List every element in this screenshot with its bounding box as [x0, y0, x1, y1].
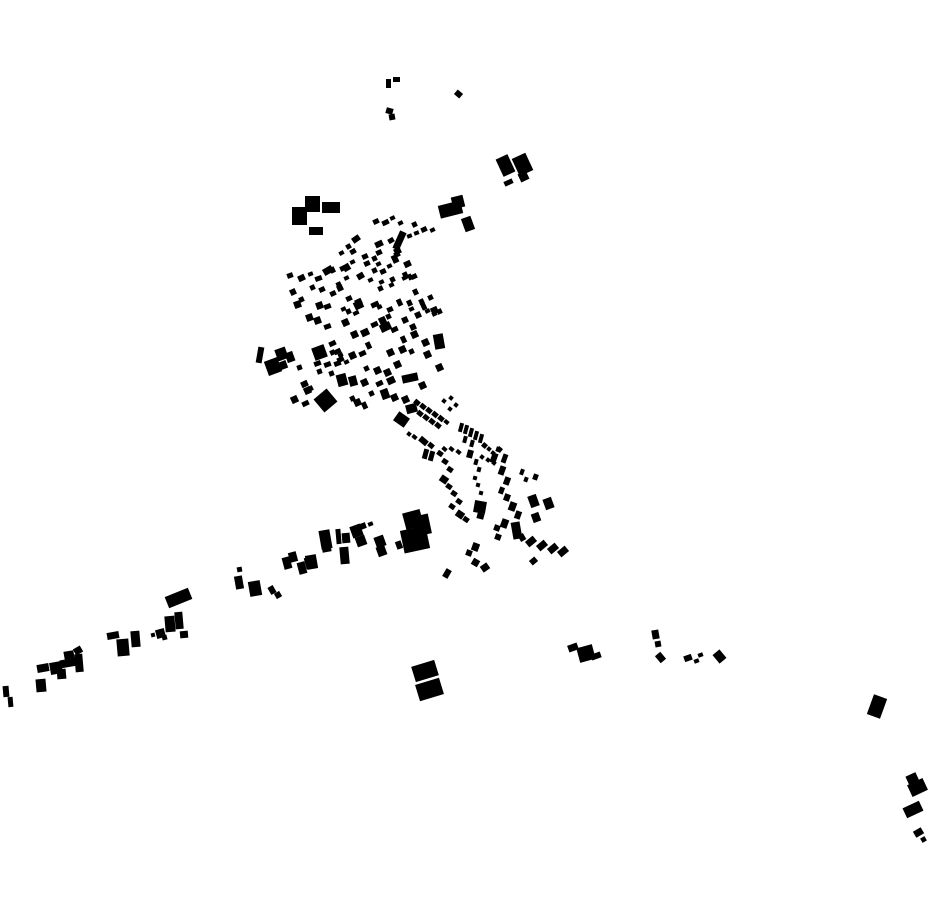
building-footprint [372, 218, 380, 225]
building-footprint [434, 422, 442, 430]
building-footprint [435, 363, 444, 372]
building-footprint [351, 234, 361, 244]
building-footprint [180, 631, 189, 639]
building-footprint [345, 295, 353, 302]
building-footprint [401, 395, 410, 404]
building-footprint [503, 476, 511, 486]
building-footprint [408, 348, 415, 355]
building-footprint [63, 650, 74, 660]
building-footprint [311, 344, 328, 361]
building-footprint [367, 521, 373, 526]
building-footprint [389, 215, 395, 221]
building-footprint [446, 466, 454, 474]
building-footprint [412, 288, 419, 296]
building-footprint [418, 381, 427, 390]
building-footprint [35, 679, 46, 693]
building-footprint [920, 836, 927, 843]
building-footprint [388, 282, 394, 288]
building-footprint [301, 400, 309, 407]
building-footprint [289, 288, 297, 296]
building-footprint [367, 277, 373, 283]
building-footprint [286, 272, 293, 279]
building-footprint [401, 372, 418, 383]
building-footprint [421, 338, 430, 347]
building-footprint [328, 370, 334, 376]
building-footprint [274, 591, 282, 599]
building-footprint [329, 290, 337, 297]
building-footprint [494, 533, 502, 541]
building-footprint [323, 323, 331, 330]
building-footprint [393, 77, 400, 82]
building-footprint [500, 518, 510, 529]
building-footprint [393, 360, 402, 369]
building-footprint [527, 494, 540, 508]
building-footprint [454, 89, 463, 98]
building-footprint [461, 216, 475, 233]
building-footprint [408, 306, 414, 312]
building-footprint [321, 543, 331, 552]
building-footprint [363, 260, 371, 267]
building-footprint [476, 483, 481, 488]
building-footprint [307, 385, 314, 392]
building-footprint [316, 368, 322, 374]
building-footprint [377, 285, 384, 292]
building-footprint [336, 284, 344, 292]
building-footprint [359, 522, 367, 530]
building-footprint [370, 321, 378, 328]
building-footprint [428, 451, 435, 462]
building-footprint [523, 476, 528, 482]
building-footprint [441, 398, 447, 404]
building-footprint [381, 219, 389, 226]
building-footprint [161, 634, 167, 640]
building-footprint [151, 633, 156, 638]
building-footprint [386, 79, 391, 88]
building-footprint [390, 326, 398, 333]
building-footprint [296, 364, 302, 370]
building-footprint [314, 389, 338, 413]
building-footprint [386, 376, 396, 386]
building-footprint [350, 330, 359, 339]
building-footprint [322, 202, 340, 213]
building-footprint [473, 476, 478, 481]
building-footprint [348, 351, 357, 360]
building-footprint [292, 207, 307, 225]
building-footprint [360, 378, 369, 387]
building-footprint [174, 612, 183, 630]
building-footprint [390, 393, 399, 402]
building-footprint [336, 373, 349, 387]
building-footprint [248, 580, 262, 597]
building-footprint [498, 465, 507, 476]
building-footprint [697, 652, 703, 657]
building-footprint [389, 276, 396, 283]
building-footprint [348, 375, 358, 387]
building-footprint [514, 510, 522, 520]
building-footprint [358, 350, 366, 357]
building-footprint [355, 535, 368, 548]
building-footprint [36, 663, 49, 673]
building-footprint [297, 274, 306, 282]
building-footprint [476, 512, 484, 520]
building-footprint [380, 388, 391, 400]
building-footprint [389, 114, 396, 121]
building-footprint [406, 233, 412, 238]
building-footprint [309, 284, 316, 291]
building-footprint [74, 654, 84, 673]
building-footprint [323, 361, 331, 368]
building-footprint [542, 497, 554, 510]
building-footprint [441, 458, 449, 466]
building-footprint [338, 250, 344, 256]
building-footprint [361, 401, 368, 409]
building-footprint [448, 395, 454, 401]
building-footprint [318, 286, 326, 293]
building-footprint [420, 226, 428, 233]
building-footprint [363, 365, 370, 372]
building-footprint [410, 330, 419, 339]
building-footprint [386, 263, 392, 269]
building-footprint [427, 442, 435, 450]
building-footprint [479, 491, 484, 496]
building-footprint [469, 440, 475, 448]
building-footprint [411, 221, 418, 228]
building-footprint [349, 259, 355, 265]
building-footprint [313, 316, 322, 325]
building-footprint [427, 294, 434, 301]
building-footprint [693, 658, 699, 663]
building-footprint [288, 551, 298, 563]
building-footprint [345, 308, 352, 315]
building-footprint [473, 459, 478, 466]
building-footprint [374, 240, 384, 249]
building-footprint [476, 467, 481, 473]
building-footprint [333, 360, 341, 367]
building-footprint [57, 669, 67, 680]
building-footprint [465, 549, 473, 557]
building-footprint [398, 345, 407, 354]
building-footprint [396, 298, 403, 306]
building-footprint [343, 359, 349, 365]
building-footprint [493, 524, 501, 532]
building-footprint [335, 529, 341, 544]
building-footprint [415, 678, 444, 702]
building-footprint [867, 694, 887, 719]
map-canvas [0, 0, 930, 924]
building-footprint [375, 261, 381, 267]
building-footprint [365, 341, 372, 349]
building-footprint [501, 453, 509, 463]
building-footprint [8, 697, 14, 707]
building-footprint [305, 196, 320, 212]
building-footprint [371, 267, 378, 274]
building-footprint [450, 490, 458, 498]
building-footprint [343, 275, 349, 281]
building-footprint [462, 436, 468, 444]
building-footprint [385, 313, 392, 320]
building-footprint [3, 686, 10, 697]
building-footprint [313, 360, 321, 367]
building-footprint [414, 311, 422, 319]
building-footprint [655, 641, 662, 648]
building-footprint [451, 195, 466, 210]
building-footprint [309, 227, 323, 235]
building-footprint [423, 350, 432, 359]
building-footprint [433, 333, 445, 350]
building-footprint [429, 227, 435, 233]
building-footprint [448, 503, 456, 511]
building-footprint [448, 446, 454, 452]
building-footprint [290, 395, 299, 404]
building-footprint [116, 639, 129, 657]
building-footprint [453, 402, 459, 408]
building-footprint [234, 575, 244, 589]
building-footprint [462, 516, 470, 524]
building-footprint [130, 631, 140, 648]
building-footprint [373, 366, 382, 375]
building-footprint [455, 449, 461, 455]
building-footprint [328, 340, 336, 347]
building-footprint [375, 249, 383, 256]
building-footprint [165, 588, 193, 608]
building-footprint [411, 434, 417, 440]
building-footprint [339, 547, 349, 565]
building-footprint [536, 540, 548, 552]
building-footprint [323, 303, 331, 310]
building-footprint [529, 556, 538, 565]
building-footprint [400, 335, 407, 343]
building-footprint [352, 310, 359, 316]
building-footprint [466, 449, 474, 458]
building-footprint [353, 299, 365, 310]
building-footprint [480, 562, 491, 572]
building-footprint [519, 468, 525, 475]
building-footprint [443, 419, 449, 425]
building-footprint [237, 567, 243, 573]
building-footprint [376, 545, 388, 557]
building-footprint [401, 316, 409, 324]
building-footprint [531, 512, 542, 523]
building-footprint [400, 526, 430, 554]
building-footprint [413, 230, 419, 235]
building-footprint [386, 306, 394, 313]
building-footprint [349, 248, 357, 255]
building-footprint [307, 271, 313, 276]
building-footprint [479, 454, 485, 460]
building-footprint [397, 220, 403, 226]
building-footprint [356, 272, 365, 281]
building-footprint [713, 649, 727, 663]
building-footprint [655, 652, 666, 663]
building-footprint [379, 268, 387, 275]
building-footprint [683, 654, 693, 662]
building-footprint [342, 533, 351, 544]
building-footprint [314, 275, 322, 282]
building-footprint [442, 568, 452, 579]
building-footprint [386, 348, 395, 357]
building-footprint [903, 801, 924, 819]
building-footprint [341, 318, 350, 327]
building-footprint [651, 629, 659, 639]
building-footprint [403, 260, 412, 268]
building-footprint [532, 473, 539, 480]
building-footprint [360, 328, 370, 338]
building-footprint [368, 390, 375, 397]
building-footprint [503, 178, 513, 186]
building-footprint [375, 380, 383, 387]
building-footprint [361, 253, 369, 260]
building-footprint [455, 498, 463, 506]
building-footprint [447, 406, 453, 412]
